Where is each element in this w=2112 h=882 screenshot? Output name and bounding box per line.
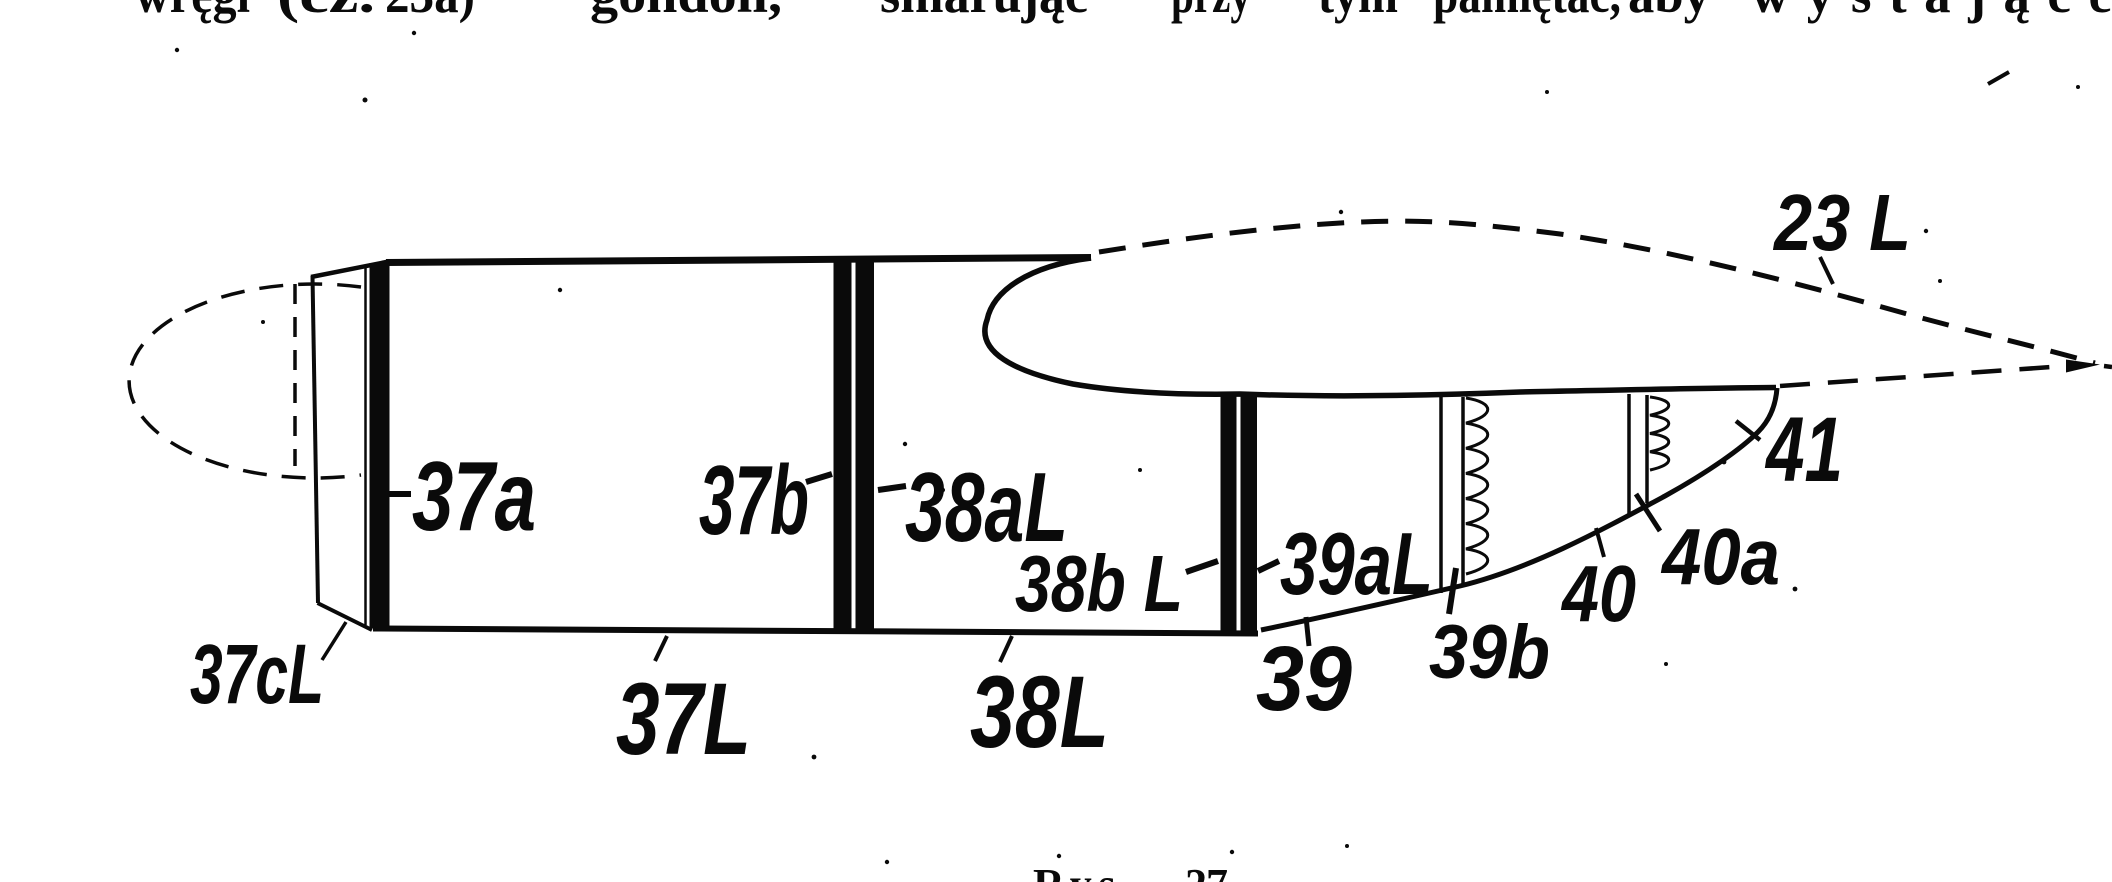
svg-text:38L: 38L (970, 655, 1109, 769)
svg-text:(cz.: (cz. (277, 0, 375, 24)
svg-text:pamiętać,: pamiętać, (1433, 0, 1621, 24)
svg-text:37a: 37a (412, 441, 536, 551)
svg-text:przy: przy (1171, 0, 1251, 24)
svg-text:27: 27 (1185, 860, 1228, 882)
svg-text:smarując: smarując (880, 0, 1088, 24)
svg-text:40: 40 (1560, 549, 1636, 638)
svg-text:aby: aby (1628, 0, 1710, 24)
svg-text:39: 39 (1256, 628, 1352, 730)
svg-text:wręgi: wręgi (135, 0, 250, 24)
svg-text:37b: 37b (699, 445, 809, 555)
svg-text:23a): 23a) (385, 0, 475, 24)
svg-text:40a: 40a (1660, 512, 1780, 601)
svg-text:37cL: 37cL (190, 627, 324, 721)
svg-text:41: 41 (1764, 399, 1843, 501)
svg-text:37L: 37L (616, 662, 751, 776)
svg-text:38b L: 38b L (1015, 539, 1183, 628)
svg-text:Rys.: Rys. (1033, 860, 1133, 882)
svg-text:gondoli,: gondoli, (590, 0, 782, 24)
svg-text:39b: 39b (1429, 610, 1550, 695)
svg-text:39aL: 39aL (1280, 514, 1433, 613)
svg-text:wystające: wystające (1751, 0, 2112, 24)
svg-text:23 L: 23 L (1772, 178, 1911, 267)
svg-text:tym: tym (1318, 0, 1398, 24)
